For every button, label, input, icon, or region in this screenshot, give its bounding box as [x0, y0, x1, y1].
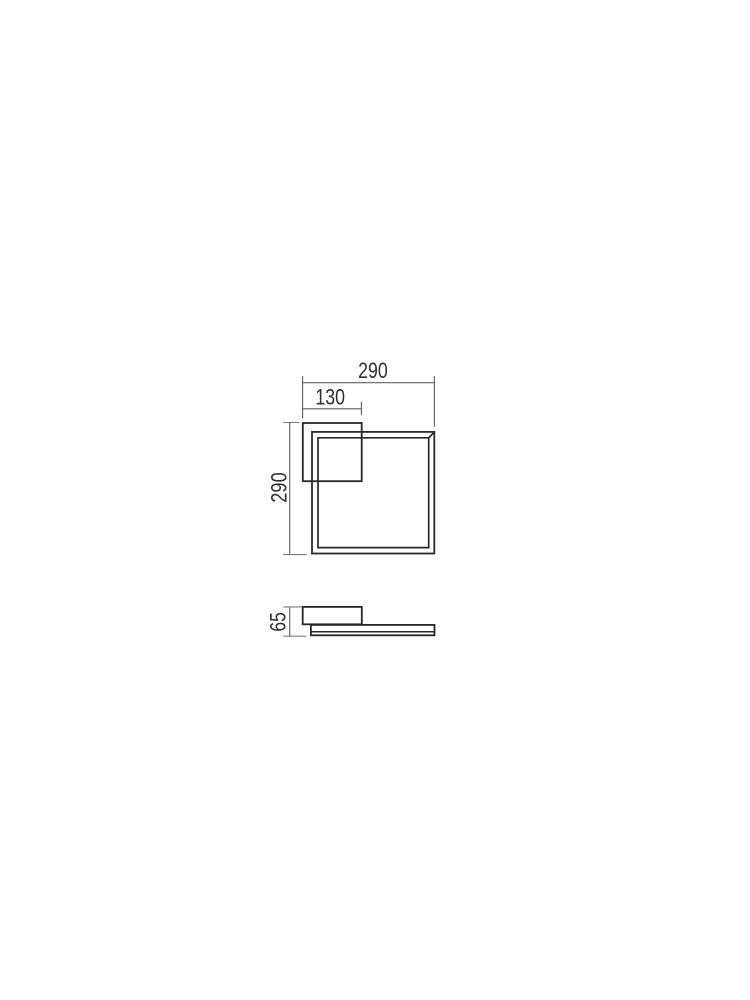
svg-text:290: 290 — [266, 472, 291, 502]
svg-text:65: 65 — [266, 612, 291, 632]
svg-text:130: 130 — [315, 385, 345, 410]
svg-text:290: 290 — [358, 358, 388, 383]
